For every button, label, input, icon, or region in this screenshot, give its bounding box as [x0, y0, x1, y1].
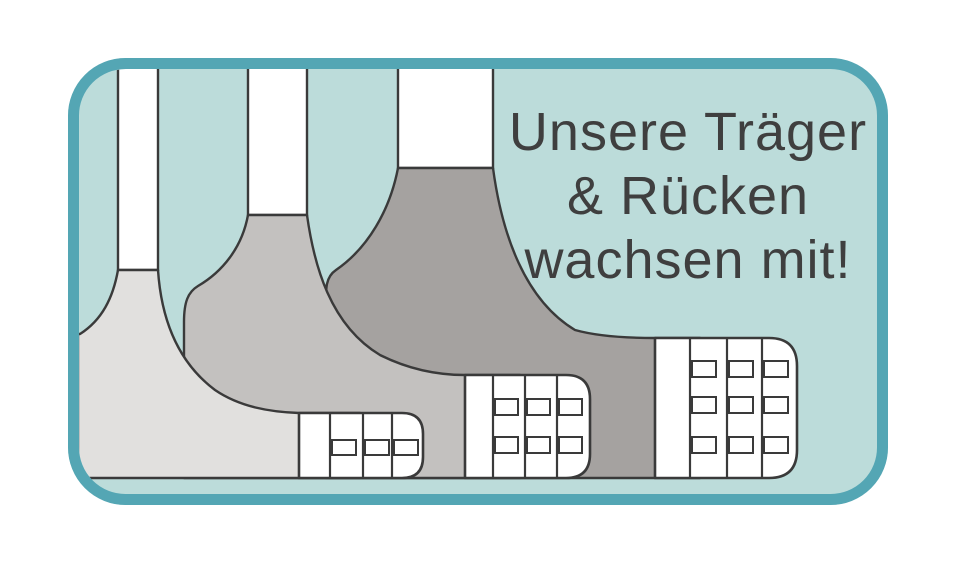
hook-band-large — [655, 338, 797, 478]
bra-growth-infographic: Unsere Träger & Rücken wachsen mit! — [0, 0, 960, 567]
strap-large — [398, 56, 493, 168]
headline-line-1: Unsere Träger — [509, 102, 867, 162]
hook-band-medium-body — [465, 375, 590, 478]
infographic-canvas: Unsere Träger & Rücken wachsen mit! — [0, 0, 960, 567]
hook-band-small — [299, 413, 423, 478]
hooks-small — [332, 440, 418, 455]
hook-band-medium — [465, 375, 590, 478]
hooks-large — [692, 361, 788, 453]
headline-line-3: wachsen mit! — [523, 230, 851, 290]
strap-medium — [248, 56, 307, 215]
headline-line-2: & Rücken — [567, 166, 809, 226]
strap-small — [118, 56, 158, 270]
